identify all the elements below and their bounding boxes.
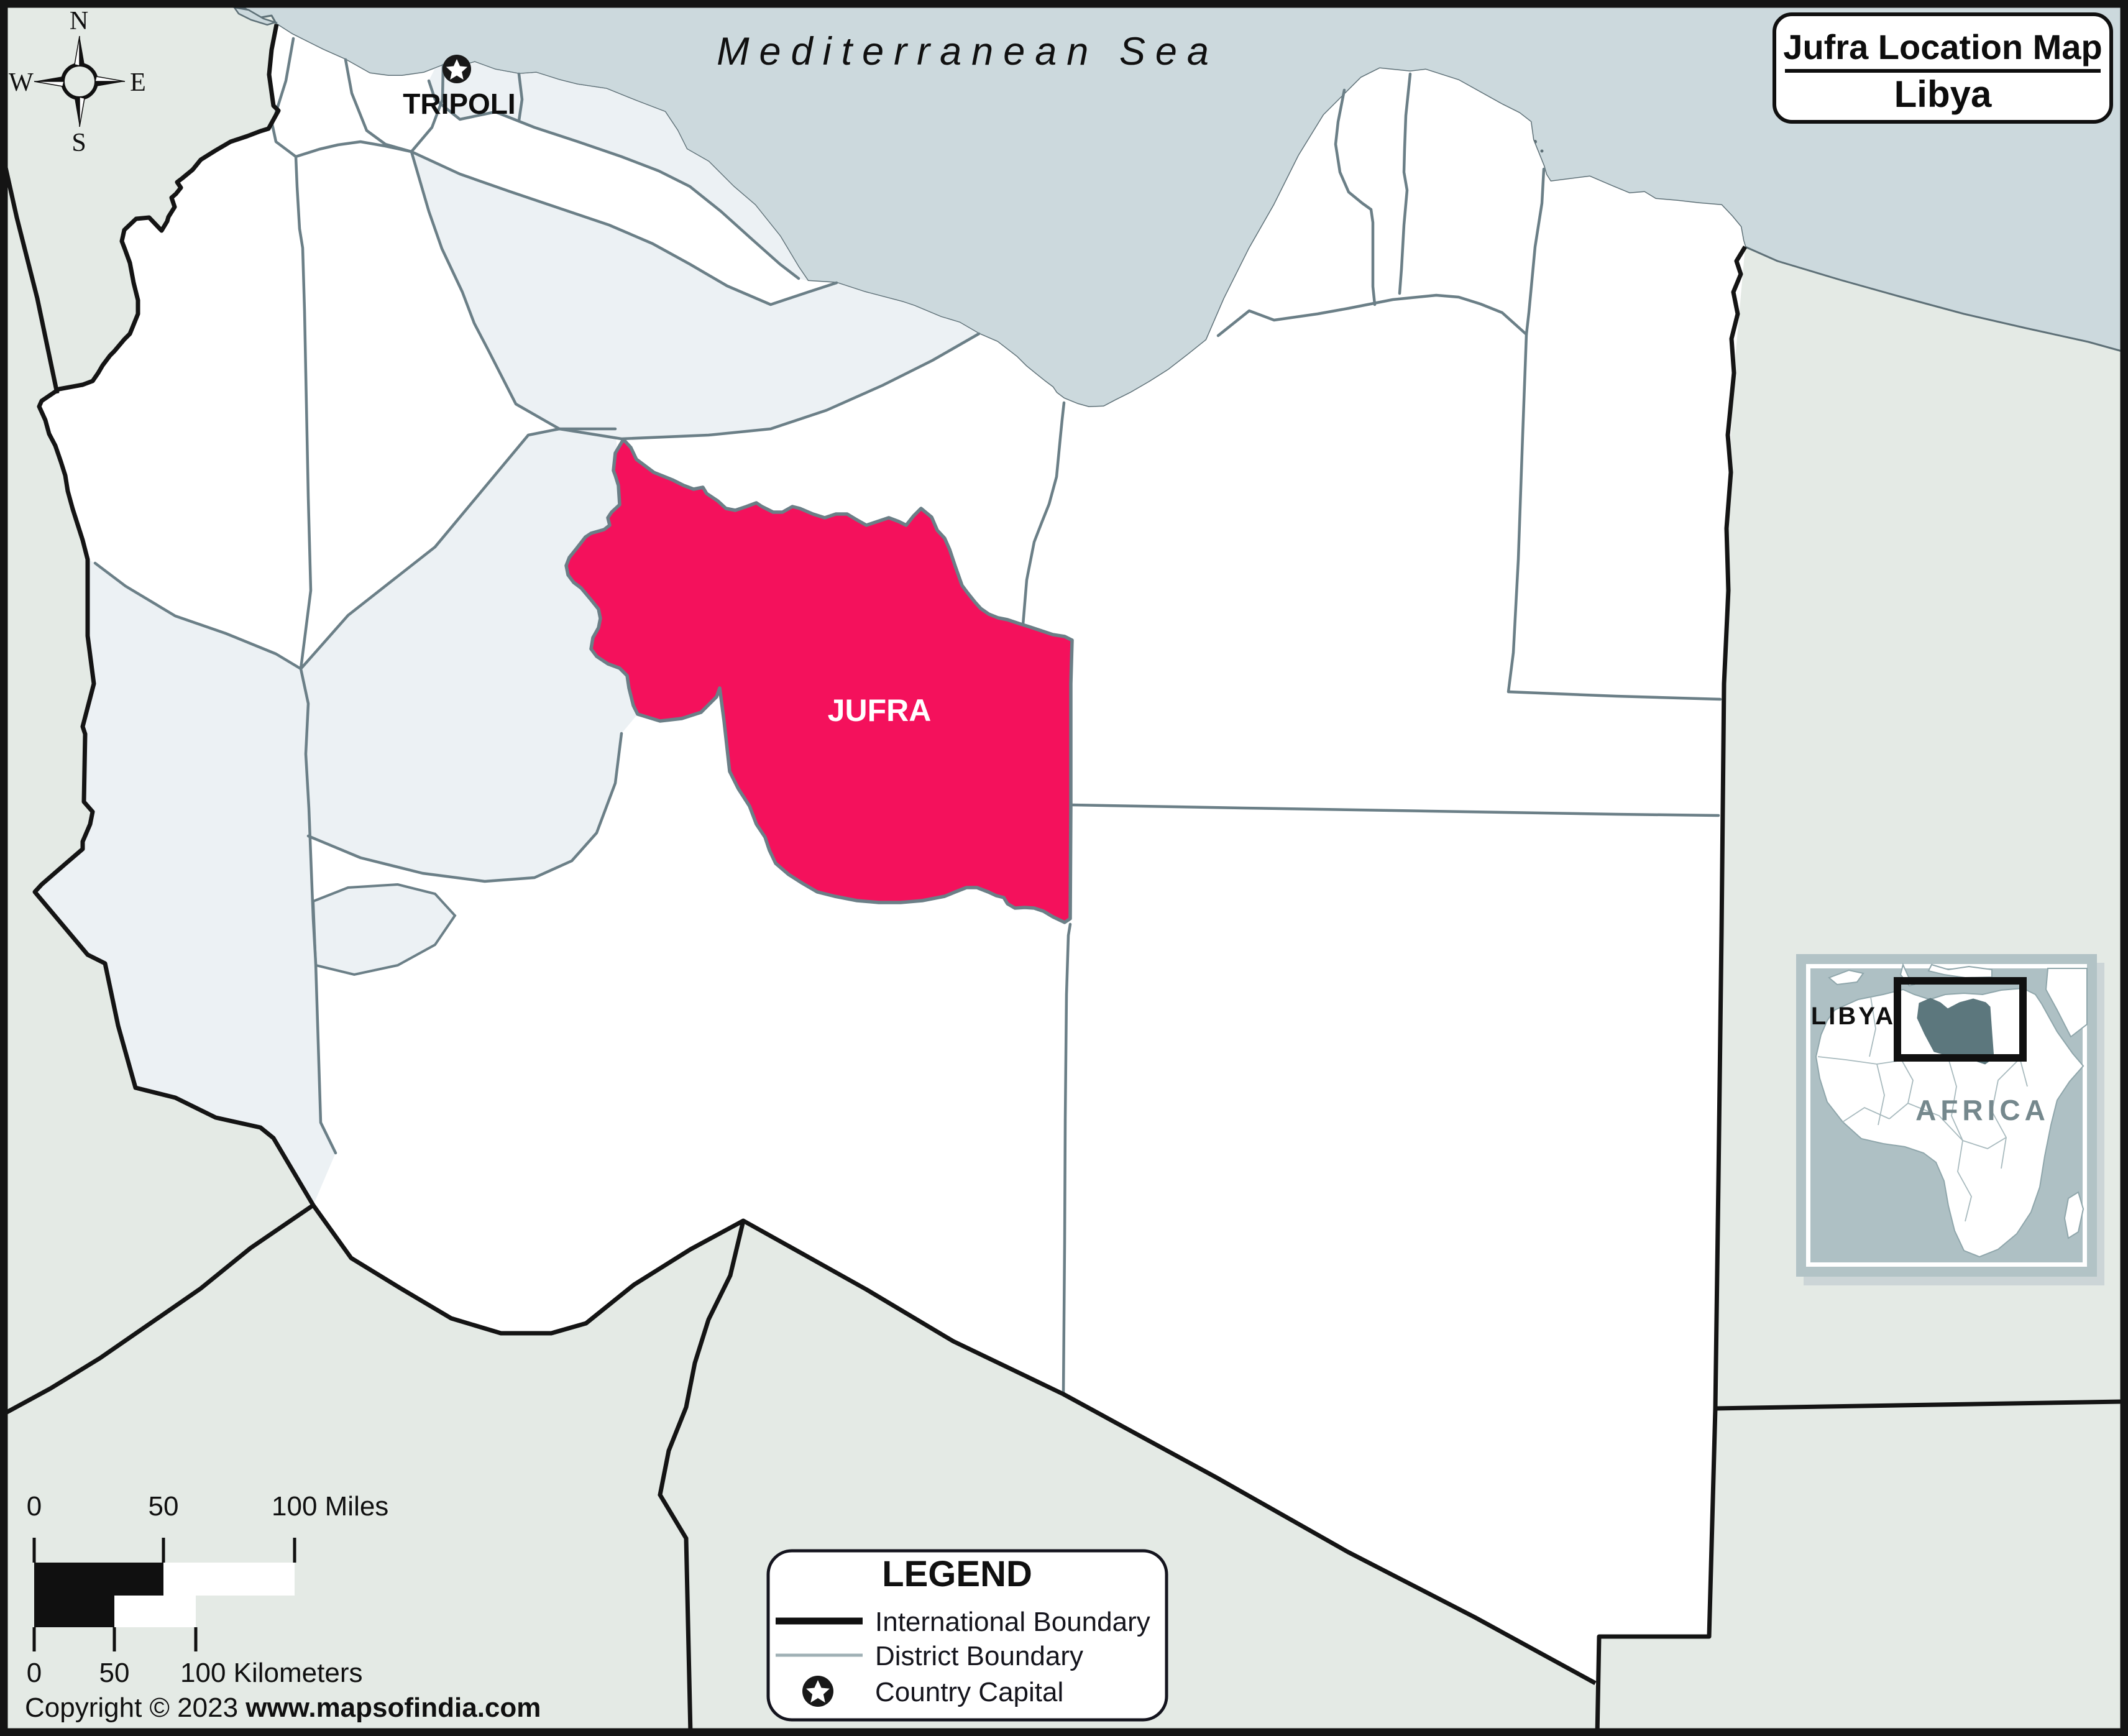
svg-text:0: 0: [27, 1658, 42, 1688]
svg-text:LIBYA: LIBYA: [1811, 1003, 1896, 1030]
svg-text:Jufra Location Map: Jufra Location Map: [1783, 27, 2102, 67]
svg-text:AFRICA: AFRICA: [1915, 1094, 2050, 1126]
svg-text:0: 0: [27, 1491, 42, 1522]
svg-text:JUFRA: JUFRA: [828, 693, 932, 728]
svg-text:S: S: [71, 129, 86, 157]
svg-text:Country Capital: Country Capital: [875, 1677, 1063, 1707]
svg-text:W: W: [9, 68, 34, 97]
svg-text:50: 50: [99, 1658, 130, 1688]
svg-text:TRIPOLI: TRIPOLI: [403, 88, 515, 120]
svg-text:N: N: [70, 7, 88, 35]
svg-text:LEGEND: LEGEND: [882, 1554, 1032, 1594]
svg-text:International Boundary: International Boundary: [875, 1607, 1150, 1637]
svg-text:Mediterranean Sea: Mediterranean Sea: [717, 30, 1219, 73]
svg-text:District Boundary: District Boundary: [875, 1641, 1083, 1671]
svg-text:100 Miles: 100 Miles: [272, 1491, 388, 1522]
svg-text:Copyright © 2023 www.mapsofind: Copyright © 2023 www.mapsofindia.com: [25, 1692, 541, 1723]
svg-text:Libya: Libya: [1894, 73, 1992, 115]
svg-text:E: E: [130, 68, 146, 97]
svg-text:100 Kilometers: 100 Kilometers: [180, 1658, 362, 1688]
svg-text:50: 50: [149, 1491, 179, 1522]
